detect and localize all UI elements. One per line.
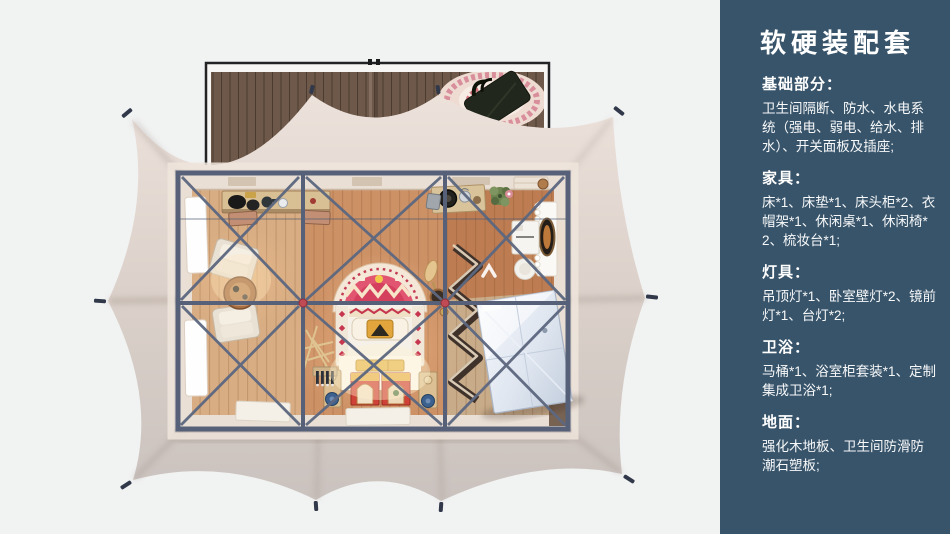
spec-body: 床*1、床垫*1、床头柜*2、衣帽架*1、休闲桌*1、休闲椅*2、梳妆台*1;: [762, 193, 937, 250]
floorplan-svg: [0, 0, 720, 534]
basket: [538, 179, 548, 189]
wall-shelf: [514, 177, 548, 189]
spec-heading: 灯具：: [762, 263, 937, 283]
spec-body: 强化木地板、卫生间防滑防潮石塑板;: [762, 437, 937, 475]
frame-joint: [441, 299, 449, 307]
spec-sidebar: 软硬装配套 基础部分： 卫生间隔断、防水、水电系统（强电、弱电、给水、排水）、开…: [720, 0, 950, 534]
spec-heading: 卫浴：: [762, 338, 937, 358]
spec-section-basics: 基础部分： 卫生间隔断、防水、水电系统（强电、弱电、给水、排水）、开关面板及插座…: [762, 75, 937, 156]
spec-section-lighting: 灯具： 吊顶灯*1、卧室壁灯*2、镜前灯*1、台灯*2;: [762, 263, 937, 325]
sidebar-title: 软硬装配套: [720, 0, 950, 58]
spec-heading: 家具：: [762, 169, 937, 189]
hat: [228, 195, 246, 209]
hat: [247, 200, 260, 211]
spec-section-furniture: 家具： 床*1、床垫*1、床头柜*2、衣帽架*1、休闲桌*1、休闲椅*2、梳妆台…: [762, 169, 937, 250]
spec-heading: 地面：: [762, 413, 937, 433]
spec-section-bathroom: 卫浴： 马桶*1、浴室柜套装*1、定制集成卫浴*1;: [762, 338, 937, 400]
screenshot-root: 软硬装配套 基础部分： 卫生间隔断、防水、水电系统（强电、弱电、给水、排水）、开…: [0, 0, 950, 534]
cup: [279, 199, 288, 208]
spec-body: 吊顶灯*1、卧室壁灯*2、镜前灯*1、台灯*2;: [762, 287, 937, 325]
spec-body: 卫生间隔断、防水、水电系统（强电、弱电、给水、排水）、开关面板及插座;: [762, 99, 937, 156]
spec-section-flooring: 地面： 强化木地板、卫生间防滑防潮石塑板;: [762, 413, 937, 475]
frame-joint: [299, 299, 307, 307]
spec-heading: 基础部分：: [762, 75, 937, 95]
tent-floorplan-figure: [0, 0, 720, 534]
stool-gray: [426, 193, 441, 210]
spec-list: 基础部分： 卫生间隔断、防水、水电系统（强电、弱电、给水、排水）、开关面板及插座…: [720, 75, 950, 475]
room: [178, 173, 586, 429]
spec-body: 马桶*1、浴室柜套装*1、定制集成卫浴*1;: [762, 362, 937, 400]
